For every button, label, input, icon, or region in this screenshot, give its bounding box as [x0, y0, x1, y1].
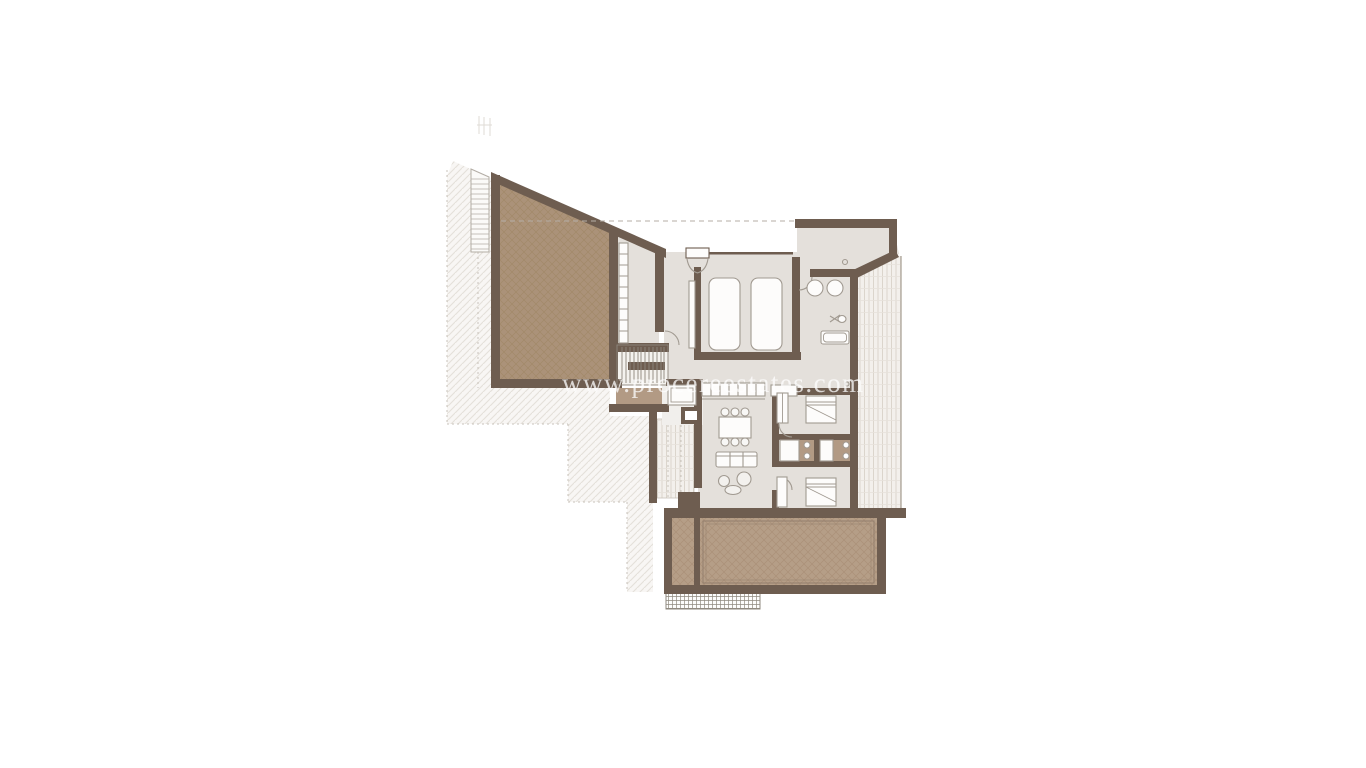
bath-block-west-wall — [772, 434, 779, 467]
vestibule-south-wall-a — [795, 269, 800, 277]
vestibule-north-wall — [795, 219, 897, 228]
pool-south-wall — [664, 585, 886, 594]
porch-west-wall — [649, 412, 657, 503]
duct-box — [685, 411, 697, 420]
approach-ramp — [471, 169, 489, 252]
bedroom-south-wall — [694, 352, 801, 360]
bed-1 — [806, 396, 836, 423]
sink-1 — [807, 280, 823, 296]
pool-east-wall — [877, 518, 886, 594]
vestibule-south-wall-b — [810, 269, 855, 277]
west-porch — [657, 419, 694, 498]
floor-plan-drawing: www.procereestates.com — [0, 0, 1366, 768]
wardrobe-strip — [689, 281, 695, 348]
sofa — [716, 452, 757, 467]
pool-north-wall — [664, 508, 906, 518]
dining-set — [719, 408, 751, 446]
pool-divider-wall — [694, 518, 700, 586]
shower-2 — [820, 440, 833, 461]
bed-twin-1 — [709, 278, 740, 350]
pool-west-wall — [664, 508, 672, 594]
pantry-south-wall — [609, 404, 669, 412]
basin-1 — [804, 453, 810, 459]
pool — [700, 518, 877, 586]
wardrobe-2 — [777, 477, 787, 507]
shower-1 — [780, 440, 799, 461]
bedroom-2 — [777, 477, 836, 507]
basin-2 — [843, 453, 849, 459]
bath-block-divider-wall — [814, 434, 820, 467]
watermark: www.procereestates.com — [562, 368, 865, 398]
survey-marks — [477, 116, 492, 136]
shelving — [619, 243, 628, 343]
pool-step-wall — [678, 492, 700, 512]
dining-table — [719, 417, 751, 438]
bed-2 — [806, 478, 836, 506]
garden-grate — [666, 592, 760, 609]
entry-sill — [708, 252, 793, 255]
pool-deck-strip — [672, 518, 694, 586]
toilet-2 — [843, 442, 849, 448]
pool-terrace-surface — [672, 518, 877, 586]
bed-twin-2 — [751, 278, 782, 350]
west-wall — [491, 175, 500, 388]
hall-south-wall — [609, 343, 669, 352]
toilet-1 — [804, 442, 810, 448]
sink-2 — [827, 280, 843, 296]
sloped-roof-terrace — [500, 183, 612, 379]
hall-east-wall — [655, 251, 664, 332]
